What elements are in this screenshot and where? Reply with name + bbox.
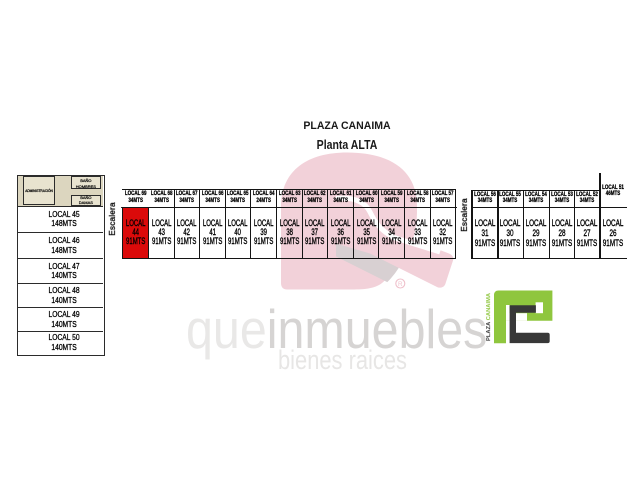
- svg-text:R: R: [398, 281, 403, 288]
